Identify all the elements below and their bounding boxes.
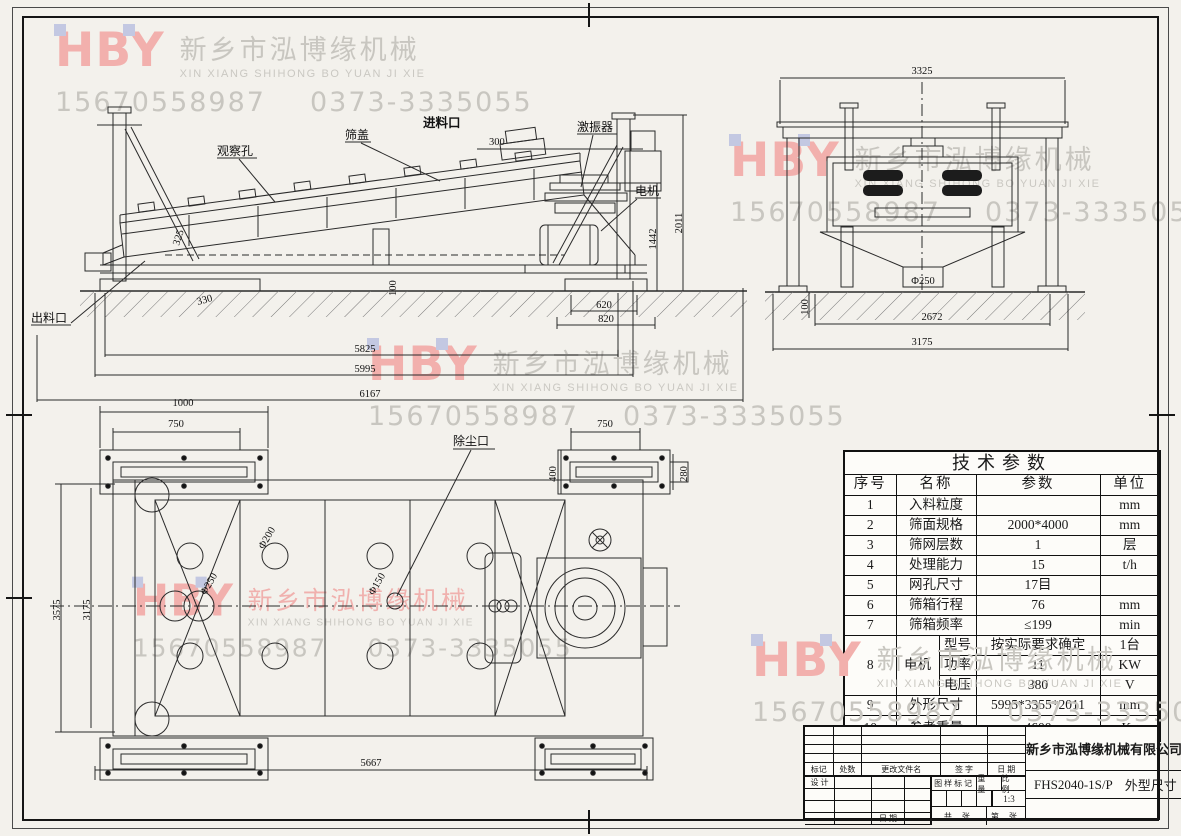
dim-hole-200: Φ200 xyxy=(257,525,278,551)
watermark-company-cn: 新乡市泓博缘机械 xyxy=(180,28,426,67)
signature-grid: 设 计 日 期 xyxy=(805,777,932,825)
revision-row xyxy=(805,727,1025,736)
logo-accent-square-icon xyxy=(820,634,832,646)
dim-620: 620 xyxy=(596,300,612,311)
dim-750-right: 750 xyxy=(597,419,613,430)
table-row: 7筛箱频率≤199min xyxy=(844,616,1160,636)
label-feed-inlet: 进料口 xyxy=(423,115,461,130)
frame-tick-left-2 xyxy=(6,597,32,599)
feed-inlet-box xyxy=(498,126,545,160)
label-discharge-outlet: 出料口 xyxy=(31,311,67,325)
dim-2672: 2672 xyxy=(922,312,943,323)
table-row: 9外形尺寸5995*3355*2011mm xyxy=(844,696,1160,716)
dim-100: 100 xyxy=(800,299,811,315)
revision-row xyxy=(805,754,1025,763)
hby-logo: HBY xyxy=(55,32,165,71)
col-header-unit: 单位 xyxy=(1100,475,1160,496)
frame-tick-bottom xyxy=(588,810,590,834)
col-header-value: 参数 xyxy=(976,475,1100,496)
dim-spout-250: Φ250 xyxy=(911,276,934,287)
label-motor: 电机 xyxy=(635,184,659,198)
frame-tick-top xyxy=(588,3,590,27)
dim-5667: 5667 xyxy=(361,758,382,769)
label-observation-hole: 观察孔 xyxy=(217,144,253,158)
title-block-revision-area: 标记 处数 更改文件名 签 字 日 期 设 计 日 期 图样标记 重 量 比 例 xyxy=(805,727,1026,818)
dim-3175: 3175 xyxy=(912,337,933,348)
revision-row xyxy=(805,736,1025,745)
dim-820: 820 xyxy=(598,314,614,325)
col-header-name: 名称 xyxy=(896,475,976,496)
frame-tick-left-1 xyxy=(6,414,32,416)
dim-1000: 1000 xyxy=(173,398,194,409)
dim-2011: 2011 xyxy=(674,213,685,234)
dim-100: 100 xyxy=(388,280,399,296)
dim-hole-250: Φ250 xyxy=(199,571,220,597)
side-view-drawing: 观察孔 筛盖 进料口 300 激振器 电机 出料口 325 330 100 62… xyxy=(25,103,750,418)
label-exciter: 激振器 xyxy=(577,120,613,134)
table-row: 5网孔尺寸17目 xyxy=(844,576,1160,596)
label-screen-cover: 筛盖 xyxy=(345,127,369,142)
end-view-drawing: 3325 Φ250 100 2672 3175 xyxy=(765,62,1085,377)
dim-5825: 5825 xyxy=(355,344,376,355)
title-block: 标记 处数 更改文件名 签 字 日 期 设 计 日 期 图样标记 重 量 比 例 xyxy=(803,725,1160,820)
company-name: 新乡市泓博缘机械有限公司 xyxy=(1026,727,1181,771)
tech-params-table: 技术参数 序号 名称 参数 单位 1入料粒度mm 2筛面规格2000*4000m… xyxy=(843,450,1161,742)
drawing-mark-area: 图样标记 重 量 比 例 1:3 共 张 第 张 xyxy=(932,777,1025,825)
logo-accent-square-icon xyxy=(123,24,135,36)
logo-accent-square-icon xyxy=(54,24,66,36)
dim-3175: 3175 xyxy=(82,600,93,621)
dim-300: 300 xyxy=(489,137,505,148)
table-row-motor: 8 电机 型号 按实际要求确定 1台 xyxy=(844,636,1160,656)
scale-value: 1:3 xyxy=(993,791,1025,807)
end-view-geometry xyxy=(765,78,1085,351)
col-header-no: 序号 xyxy=(844,475,896,496)
dim-hole-150: Φ150 xyxy=(367,571,388,597)
dim-3575: 3575 xyxy=(52,600,63,621)
table-row: 2筛面规格2000*4000mm xyxy=(844,516,1160,536)
table-row: 4处理能力15t/h xyxy=(844,556,1160,576)
title-block-company-area: 新乡市泓博缘机械有限公司 FHS2040-1S/P 外型尺寸 xyxy=(1026,727,1181,818)
engineering-drawing-page: { "watermark": { "brand": "HBY", "compan… xyxy=(0,0,1181,836)
plan-view-drawing: 1000 750 750 400 280 除尘口 Φ250 Φ200 Φ150 … xyxy=(25,388,755,793)
table-row: 3筛网层数1层 xyxy=(844,536,1160,556)
table-header-row: 序号 名称 参数 单位 xyxy=(844,475,1160,496)
revision-row xyxy=(805,745,1025,754)
label-dust-port: 除尘口 xyxy=(453,433,489,448)
table-row: 6筛箱行程76mm xyxy=(844,596,1160,616)
dim-1442: 1442 xyxy=(648,229,659,250)
frame-tick-right xyxy=(1149,414,1175,416)
drawing-number: FHS2040-1S/P 外型尺寸 xyxy=(1026,771,1181,799)
title-block-empty-cell xyxy=(1026,799,1181,818)
watermark-company-en: XIN XIANG SHIHONG BO YUAN JI XIE xyxy=(180,68,426,80)
table-title-row: 技术参数 xyxy=(844,451,1160,475)
dim-280: 280 xyxy=(679,466,690,482)
side-view-geometry xyxy=(31,107,747,402)
dim-400: 400 xyxy=(548,466,559,482)
dim-5995: 5995 xyxy=(355,364,376,375)
dim-750-left: 750 xyxy=(168,419,184,430)
dim-3325: 3325 xyxy=(912,66,933,77)
table-title: 技术参数 xyxy=(844,451,1160,475)
table-row: 1入料粒度mm xyxy=(844,496,1160,516)
